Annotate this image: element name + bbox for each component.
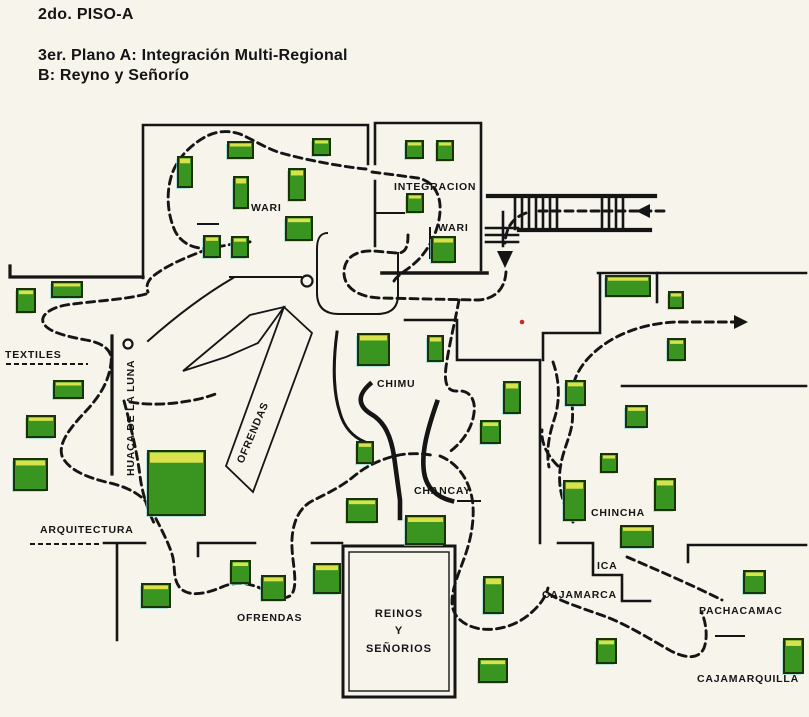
map-label-pachacamac: PACHACAMAC	[699, 605, 783, 617]
route-chimu	[445, 300, 474, 453]
display-case-highlight	[359, 444, 371, 447]
display-case-highlight	[180, 159, 190, 164]
display-case-highlight	[349, 501, 375, 505]
plan-title-a: 3er. Plano A: Integración Multi-Regional	[38, 46, 348, 66]
display-case-highlight	[56, 383, 81, 386]
map-label-integracion: INTEGRACION	[394, 181, 476, 193]
display-case-highlight	[657, 481, 673, 486]
route-chincha-fork	[542, 430, 558, 466]
route-wari-exit	[147, 249, 208, 292]
map-label-chincha: CHINCHA	[591, 507, 645, 519]
route-pachacamac-diagonal	[627, 557, 722, 600]
arrow-entry-left-icon	[636, 204, 650, 218]
display-case-highlight	[481, 661, 505, 665]
map-label-textiles: TEXTILES	[5, 349, 62, 361]
stair-treads-b	[602, 197, 623, 229]
map-label-cajamarquilla: CAJAMARQUILLA	[697, 673, 799, 685]
map-label-cajamarca: CAJAMARCA	[542, 589, 617, 601]
display-case-highlight	[288, 219, 310, 223]
display-case-highlight	[315, 141, 328, 144]
arrow-stairs-down-icon	[497, 251, 513, 268]
map-label-chimu: CHIMU	[377, 378, 415, 390]
reinos-label-line-1: REINOS	[375, 608, 423, 620]
ofrendas-band	[226, 307, 312, 492]
display-case-highlight	[483, 423, 498, 427]
display-case-highlight	[264, 578, 283, 582]
display-case-highlight	[409, 196, 421, 199]
red-dot-marker	[520, 320, 525, 325]
route-cajamarca-sweep	[549, 594, 706, 657]
reinos-label-line-2: Y	[395, 625, 403, 637]
display-case-highlight	[408, 518, 443, 522]
display-case-highlight	[670, 341, 683, 344]
wall-arquitectura	[104, 543, 145, 640]
title-block: 2do. PISO-A 3er. Plano A: Integración Mu…	[38, 6, 348, 86]
display-case-highlight	[566, 483, 583, 489]
display-case-highlight	[291, 171, 303, 176]
column-marker-center	[302, 276, 313, 287]
display-case-highlight	[506, 384, 518, 389]
display-case-highlight	[439, 143, 451, 146]
display-case-highlight	[408, 143, 421, 146]
floor-title: 2do. PISO-A	[38, 6, 348, 24]
display-case-highlight	[746, 573, 763, 577]
display-case-highlight	[19, 291, 33, 295]
display-case-highlight	[234, 239, 246, 242]
display-case-highlight	[434, 239, 453, 243]
display-case-highlight	[603, 456, 615, 459]
display-case-highlight	[486, 579, 501, 585]
display-case-highlight	[628, 408, 645, 411]
floor-plan: WARIINTEGRACIONWARITEXTILESHUACA DE LA L…	[0, 0, 809, 712]
display-case-highlight	[623, 528, 651, 531]
display-case-highlight	[599, 641, 614, 645]
display-case-highlight	[150, 453, 203, 463]
wall-pachacamac-room	[688, 545, 806, 562]
display-case-highlight	[233, 563, 248, 567]
display-case-highlight	[568, 383, 583, 387]
display-case-highlight	[360, 336, 387, 341]
map-label-ofrendas-sala: OFRENDAS	[237, 612, 302, 624]
column-marker-huaca	[124, 340, 133, 349]
display-case-highlight	[430, 338, 441, 342]
display-case-highlight	[29, 418, 53, 421]
stair-treads-a	[515, 197, 557, 229]
floor-plan-svg: WARIINTEGRACIONWARITEXTILESHUACA DE LA L…	[0, 0, 809, 712]
display-case-highlight	[230, 144, 251, 147]
map-label-wari-a: WARI	[251, 202, 282, 214]
display-case-highlight	[671, 294, 681, 297]
map-label-huaca-de-la-luna: HUACA DE LA LUNA	[125, 360, 137, 476]
reinos-label-line-3: SEÑORIOS	[366, 642, 432, 655]
wall-curve-center-left	[148, 278, 233, 341]
wall-center-block-inner	[543, 274, 600, 360]
map-label-ica: ICA	[597, 560, 617, 572]
display-case-highlight	[608, 278, 648, 281]
display-case-highlight	[206, 238, 218, 241]
reinos-room-inner-outline	[349, 552, 449, 691]
plan-title-b: B: Reyno y Señorío	[38, 66, 348, 86]
wall-left-wing	[10, 266, 143, 277]
display-case-highlight	[786, 641, 801, 646]
route-chincha-corridor	[548, 362, 559, 467]
reinos-room-outline	[343, 546, 455, 697]
display-case-highlight	[54, 284, 80, 287]
display-case-highlight	[236, 179, 246, 184]
display-case-highlight	[144, 586, 168, 590]
map-label-arquitectura: ARQUITECTURA	[40, 524, 134, 536]
route-wari-loop	[168, 132, 366, 249]
display-case-highlight	[316, 566, 338, 571]
map-label-wari-b: WARI	[438, 222, 469, 234]
route-hut-branch	[130, 393, 218, 404]
display-case-highlight	[16, 461, 45, 466]
map-label-chancay: CHANCAY	[414, 485, 471, 497]
stair-small-flight	[486, 212, 518, 246]
arrow-exit-right-icon	[734, 315, 748, 329]
ofrendas-gable	[183, 307, 284, 371]
wall-ofrendas-a	[198, 543, 255, 556]
